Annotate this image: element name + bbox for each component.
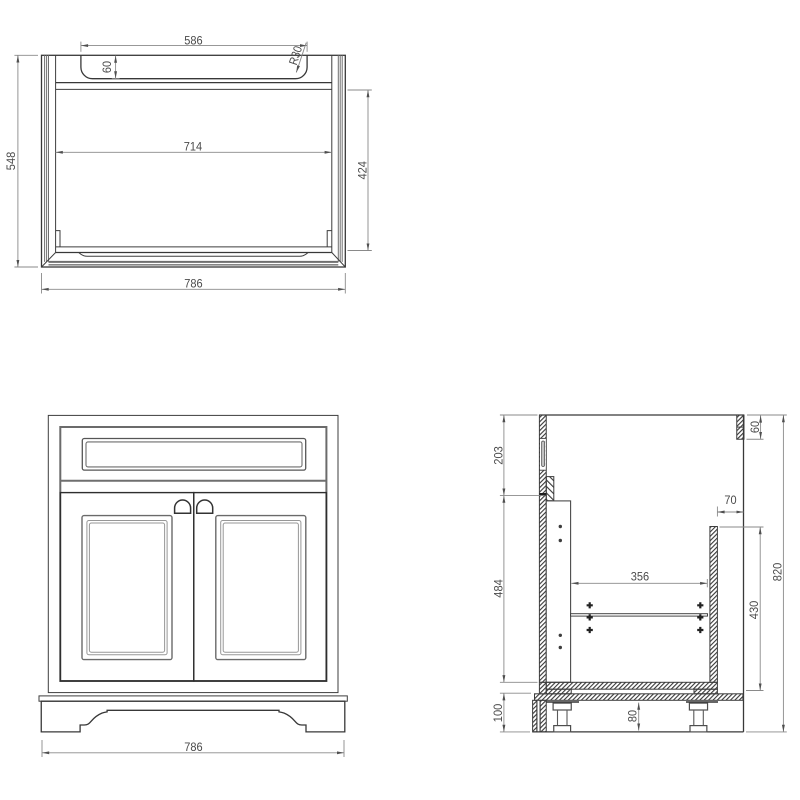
svg-text:356: 356 xyxy=(631,570,650,584)
svg-text:548: 548 xyxy=(4,152,18,171)
svg-text:424: 424 xyxy=(356,161,370,180)
svg-text:714: 714 xyxy=(184,139,203,153)
svg-text:430: 430 xyxy=(747,601,761,620)
svg-text:100: 100 xyxy=(491,704,505,723)
svg-text:60: 60 xyxy=(748,421,762,433)
svg-text:786: 786 xyxy=(184,276,203,290)
svg-text:586: 586 xyxy=(184,34,203,48)
svg-text:80: 80 xyxy=(626,710,640,722)
svg-text:203: 203 xyxy=(491,446,505,465)
svg-text:820: 820 xyxy=(771,563,785,582)
svg-text:484: 484 xyxy=(491,579,505,598)
svg-text:60: 60 xyxy=(100,61,114,73)
svg-text:70: 70 xyxy=(724,493,736,507)
svg-text:786: 786 xyxy=(184,740,203,754)
